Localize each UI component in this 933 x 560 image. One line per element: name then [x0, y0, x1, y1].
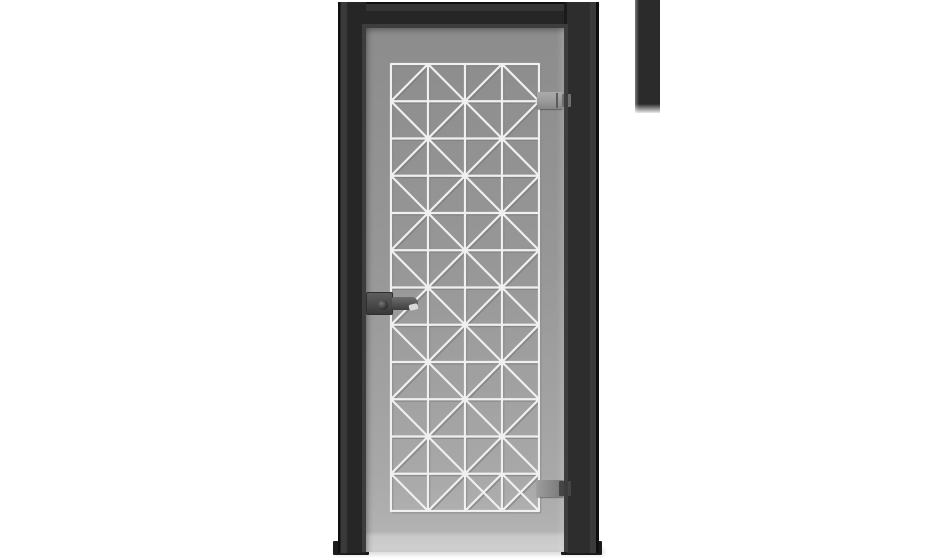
frame-inner-bevel-right	[564, 24, 568, 552]
top-hinge-notch	[556, 93, 558, 108]
frame-inner-bevel-top	[362, 24, 568, 28]
top-hinge	[537, 92, 563, 109]
lattice-pattern	[366, 28, 564, 552]
frame-inner-bevel-left	[362, 24, 366, 552]
thumbturn-knob-icon	[378, 300, 388, 310]
background-artifact-bar	[635, 0, 660, 113]
door-frame-right-jamb	[564, 2, 599, 553]
glass-panel	[366, 28, 564, 552]
product-photo	[0, 0, 933, 560]
